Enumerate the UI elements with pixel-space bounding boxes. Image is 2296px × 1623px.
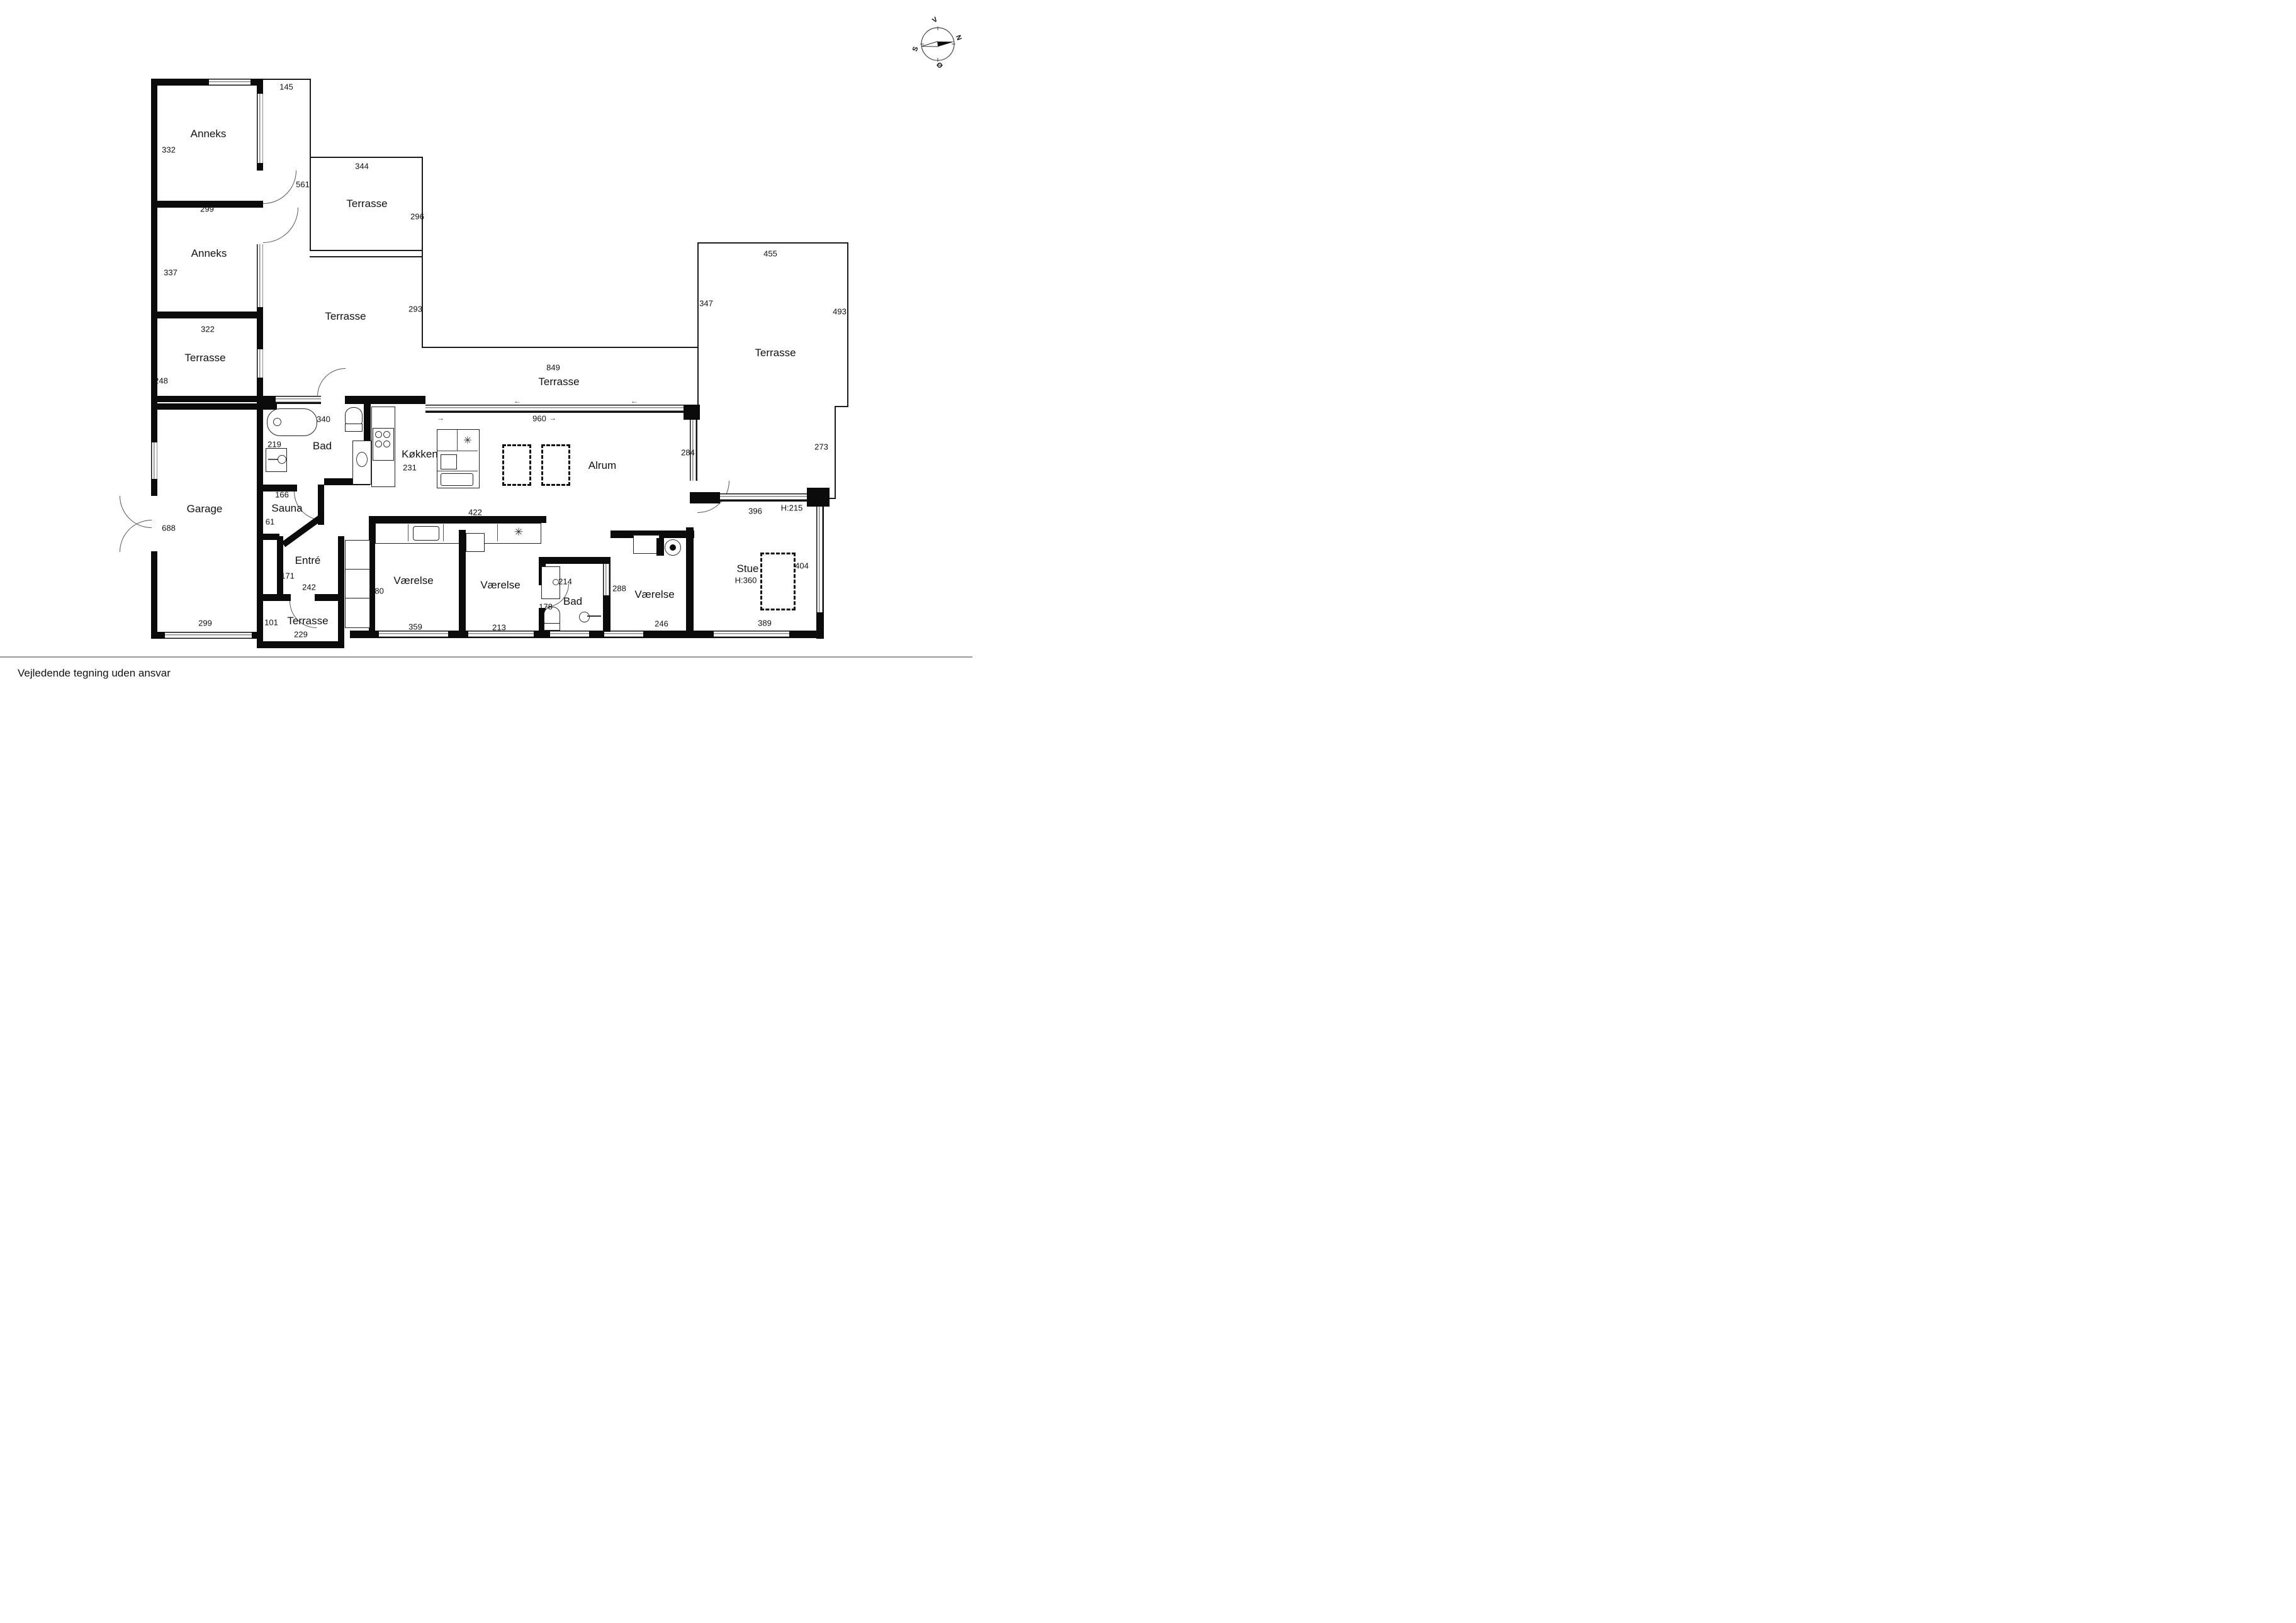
wall [603,595,611,632]
toilet-tank [345,424,363,432]
wall [257,163,263,171]
dim-h215: H:215 [781,503,803,513]
counter-divider [443,524,444,541]
shower-mixer [579,612,590,622]
dim-229: 229 [294,630,308,639]
wall [277,536,283,596]
window [603,564,611,595]
door-arc [263,171,296,204]
wall [151,396,263,402]
toilet-base [544,623,560,631]
wall [338,536,344,648]
island-sink [441,454,457,469]
shower-arm [587,615,601,617]
room-terrasse-mid: Terrasse [325,310,366,323]
dim-493: 493 [833,307,847,317]
wall [643,631,714,638]
room-terrasse-e: Terrasse [755,347,796,359]
window [257,244,263,307]
window [257,349,263,378]
dim-h360: H:360 [735,576,757,585]
window [379,631,448,638]
wall [257,403,263,648]
dim-293: 293 [408,305,422,314]
room-terrasse-w: Terrasse [184,352,225,364]
terrace-outline [310,157,311,251]
garage-door-arc [120,520,152,552]
dim-960: 960 [532,414,546,424]
wall [534,631,550,638]
wall [807,488,830,507]
wall [345,396,425,404]
room-sauna: Sauna [271,502,302,515]
burner [375,431,382,438]
terrace-outline [263,79,311,80]
dim-849: 849 [546,363,560,373]
room-terrasse-entry: Terrasse [287,615,328,627]
skylight [760,553,796,610]
wall [448,631,468,638]
terrace-outline [422,157,423,251]
wood-stove-core [670,544,676,551]
wall [151,479,157,496]
dim-404: 404 [795,561,809,571]
dim-166: 166 [275,490,289,500]
wall [656,538,664,556]
room-bad-e: Bad [563,595,582,608]
sliding-door-band [425,405,684,413]
floorplan-canvas: ← ← → → ✳ [0,0,972,687]
sink-bowl [278,455,286,464]
slide-arrow-icon: → [549,413,556,422]
dim-231: 231 [403,463,417,473]
wall [459,530,466,631]
wall [684,405,700,420]
closet [466,533,485,552]
room-entre: Entré [295,554,321,567]
wall [151,312,263,318]
dim-299-anneks: 299 [200,205,214,214]
terrace-outline [310,79,311,158]
wall [261,641,344,648]
dim-246: 246 [655,619,668,629]
room-koekken: Køkken [402,448,438,461]
wall [263,396,277,410]
window [151,442,157,479]
room-anneks-2: Anneks [191,247,227,260]
window [720,493,807,502]
dim-422: 422 [468,508,482,517]
dim-171: 171 [281,571,295,581]
room-garage: Garage [187,503,223,515]
dim-280: 280 [370,587,384,596]
terrace-outline [310,157,423,158]
dim-284: 284 [681,448,695,458]
dim-296: 296 [410,212,424,222]
wall [151,79,210,86]
wall [539,557,611,564]
dim-322: 322 [201,325,215,334]
terrace-outline [835,406,848,407]
terrace-outline [847,242,848,407]
slide-arrow-icon: ← [631,396,638,405]
island-divider [457,430,458,451]
wall [315,594,341,601]
burner [383,441,390,447]
terrace-outline [697,242,699,405]
dim-273: 273 [814,442,828,452]
wall [261,594,291,601]
freezer-icon: ✳ [463,434,471,447]
dim-213: 213 [492,623,506,632]
wall [151,403,157,442]
room-anneks-1: Anneks [191,128,227,140]
freezer-icon: ✳ [514,526,523,539]
wall [257,318,263,349]
closet [633,535,660,554]
window [276,396,321,404]
wall [151,79,157,404]
wall [151,632,166,639]
dim-178: 178 [539,602,553,612]
room-vaerelse-2: Værelse [480,579,520,592]
counter-divider [497,524,498,541]
island-dishwasher [441,473,473,486]
window [550,631,589,638]
room-alrum: Alrum [588,459,616,472]
dim-337: 337 [164,268,177,278]
door-arc [317,368,346,396]
terrace-outline [422,347,699,348]
terrace-outline [835,406,836,499]
wall [350,631,379,638]
wall [589,631,604,638]
dim-101: 101 [264,618,278,627]
dim-396: 396 [748,507,762,516]
closet [345,569,370,599]
dim-248: 248 [154,376,168,386]
wall [281,514,324,548]
terrace-outline [310,250,423,251]
closet [345,540,370,570]
dim-688: 688 [162,524,176,533]
wall [257,79,263,94]
terrace-outline [310,256,423,257]
dim-214: 214 [558,577,572,587]
door-arc [263,208,298,243]
dim-340: 340 [317,415,330,424]
skylight [541,444,570,486]
dim-561: 561 [296,180,310,189]
window [714,631,789,638]
skylight [502,444,531,486]
vanity-bowl [356,452,368,467]
slide-arrow-icon: → [437,413,444,422]
closet [345,598,370,628]
footer-divider [0,656,972,658]
window [209,79,252,86]
wall [369,516,546,523]
room-terrasse-nw: Terrasse [346,198,387,210]
compass: V N S Ø [913,18,963,70]
dim-242: 242 [302,583,316,592]
dim-299-garage: 299 [198,619,212,628]
dim-359: 359 [408,622,422,632]
dim-61: 61 [266,517,274,527]
disclaimer-text: Vejledende tegning uden ansvar [18,667,171,680]
dim-347: 347 [699,299,713,308]
terrace-outline [422,250,423,348]
room-terrasse-s: Terrasse [538,376,579,388]
burner [383,431,390,438]
dim-145: 145 [279,82,293,92]
dim-219: 219 [267,440,281,449]
terrace-outline [697,242,848,244]
wall [151,551,157,639]
room-bad-w: Bad [313,440,332,452]
wall [263,534,279,540]
wall [257,639,263,648]
wall [690,492,720,503]
window [257,94,263,163]
dim-389: 389 [758,619,772,628]
window [816,507,824,612]
room-vaerelse-3: Værelse [634,588,674,601]
island-divider [437,471,478,471]
wall [789,631,824,638]
wall [151,403,263,410]
burner [375,441,382,447]
dim-344: 344 [355,162,369,171]
room-vaerelse-1: Værelse [393,575,433,587]
window [165,632,253,639]
dim-332: 332 [162,145,176,155]
dim-288: 288 [612,584,626,593]
slide-arrow-icon: ← [514,396,521,405]
island-divider [437,451,478,451]
counter-divider [408,524,408,541]
bathtub-drain [273,418,281,426]
dishwasher [413,526,439,541]
room-stue: Stue [737,563,759,575]
dim-455: 455 [763,249,777,259]
wall [686,527,694,631]
